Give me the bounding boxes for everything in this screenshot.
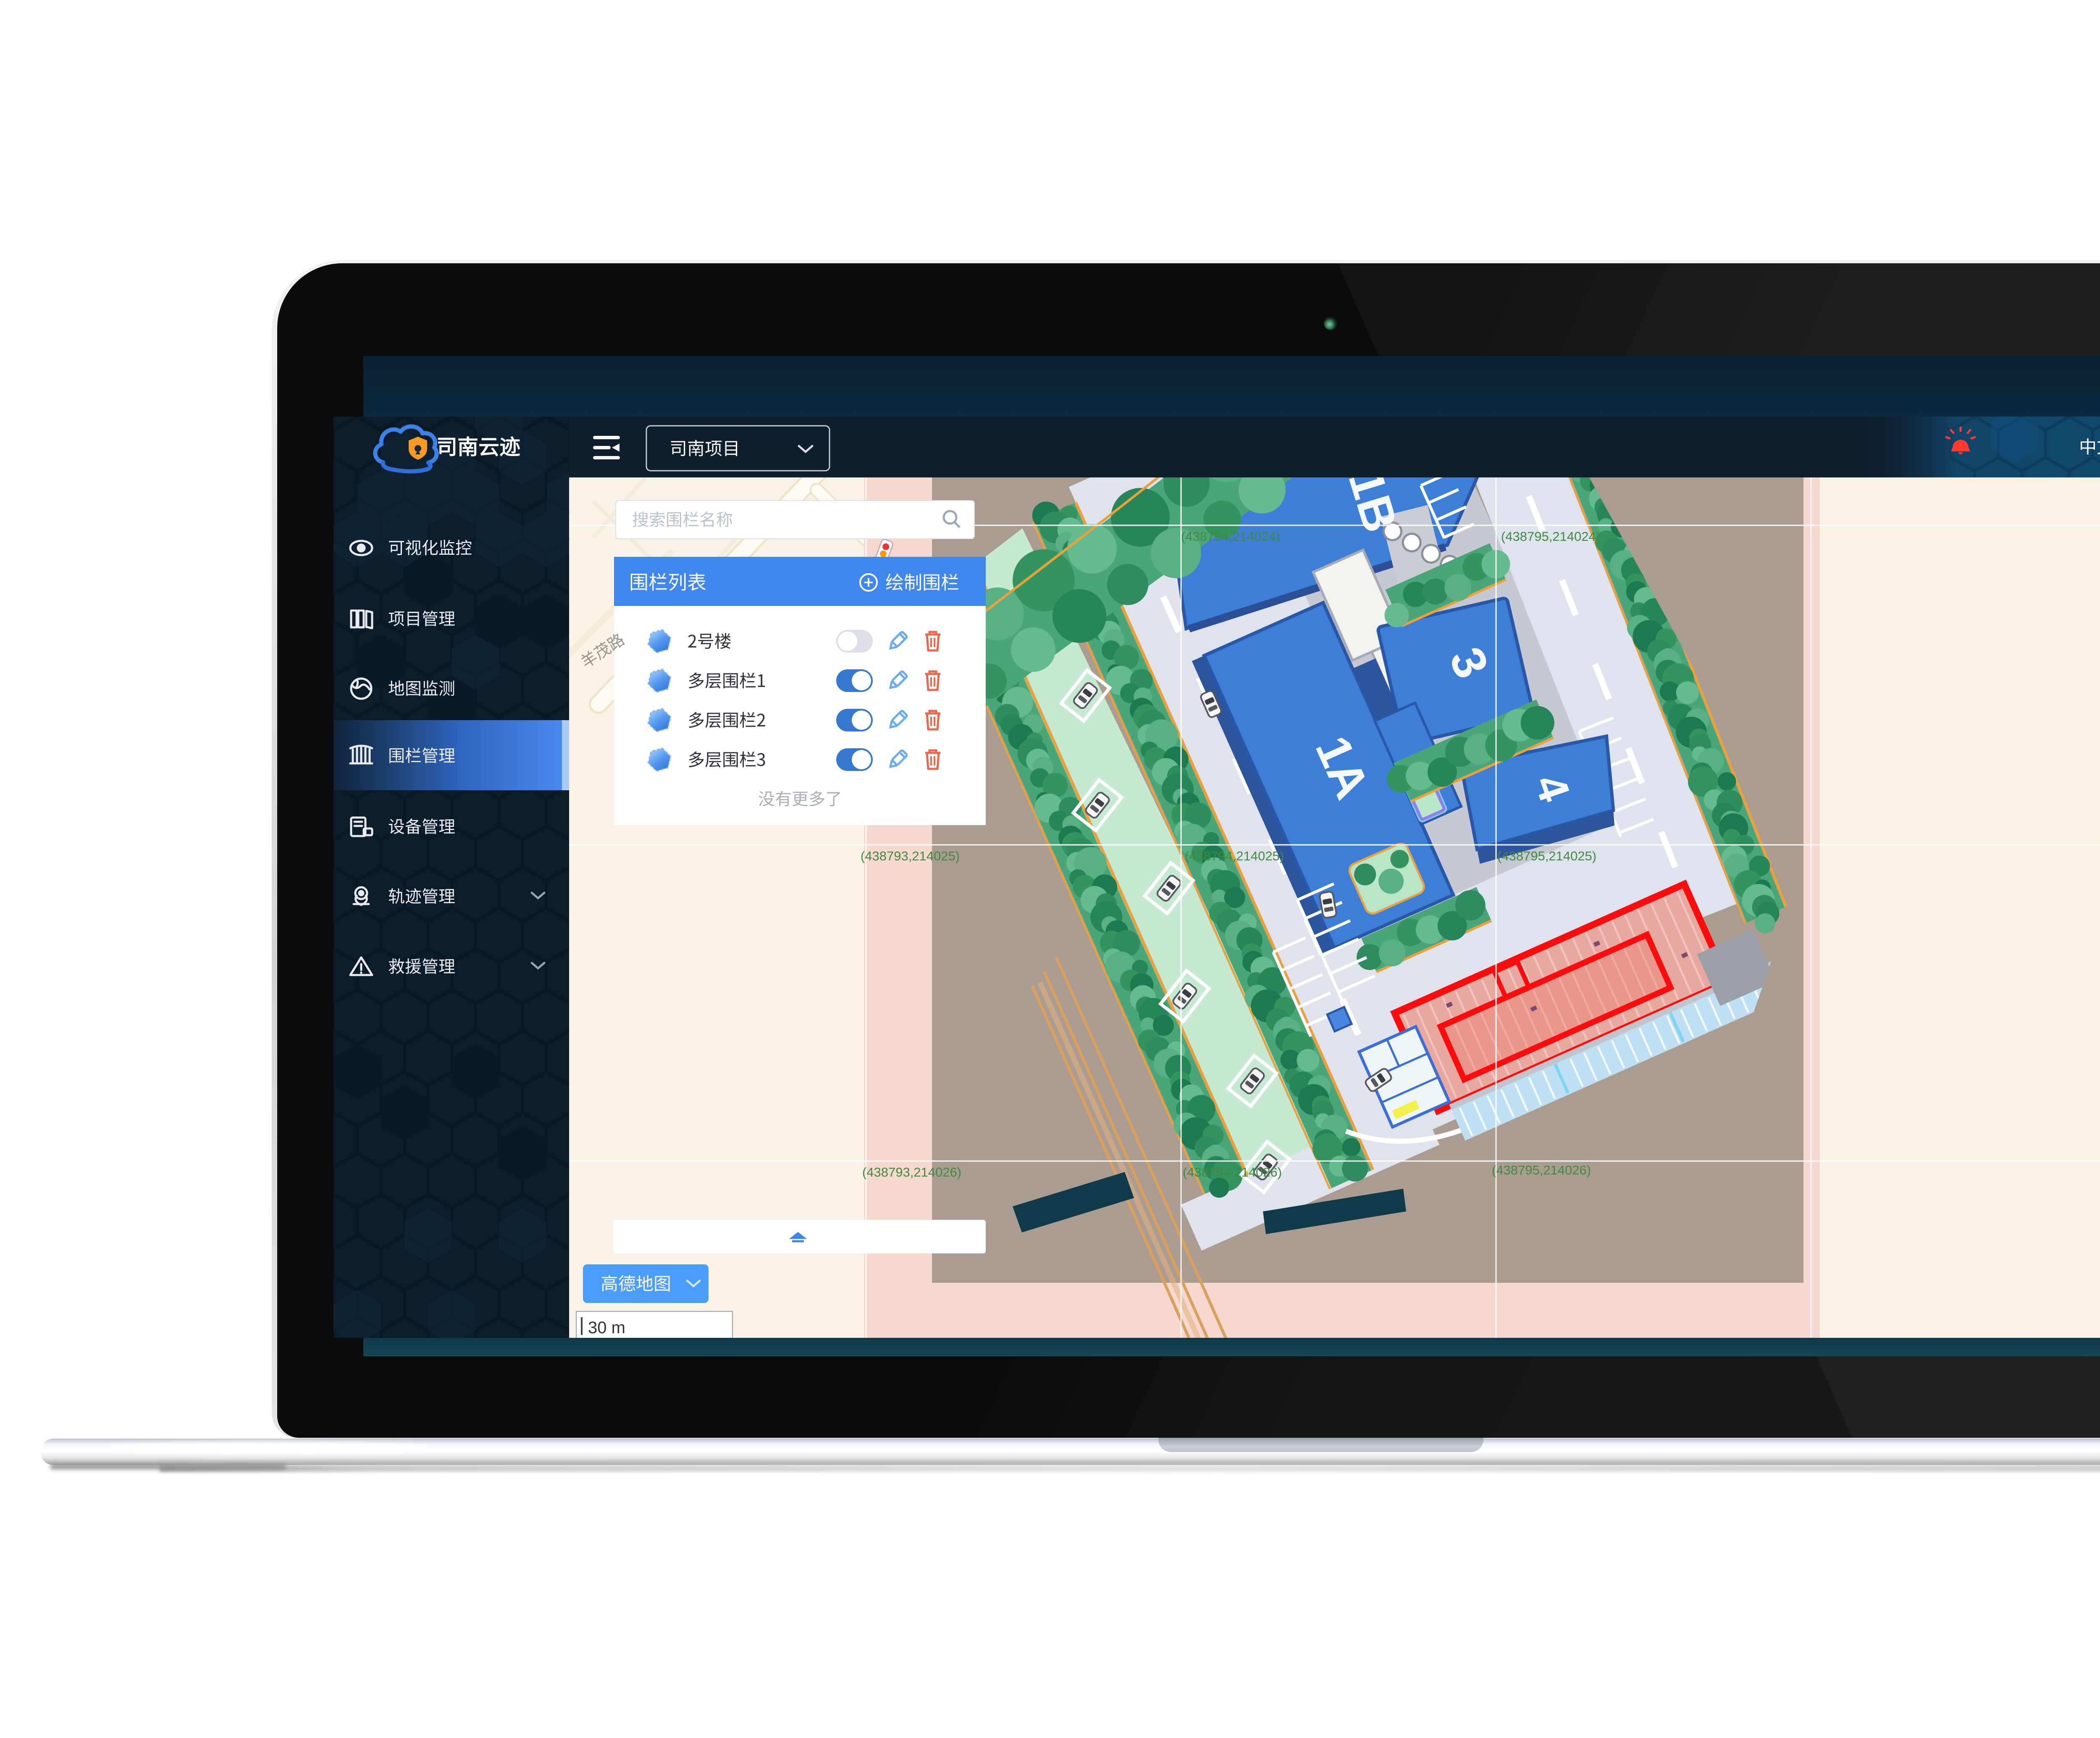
svg-text:30 m: 30 m: [588, 1319, 625, 1337]
